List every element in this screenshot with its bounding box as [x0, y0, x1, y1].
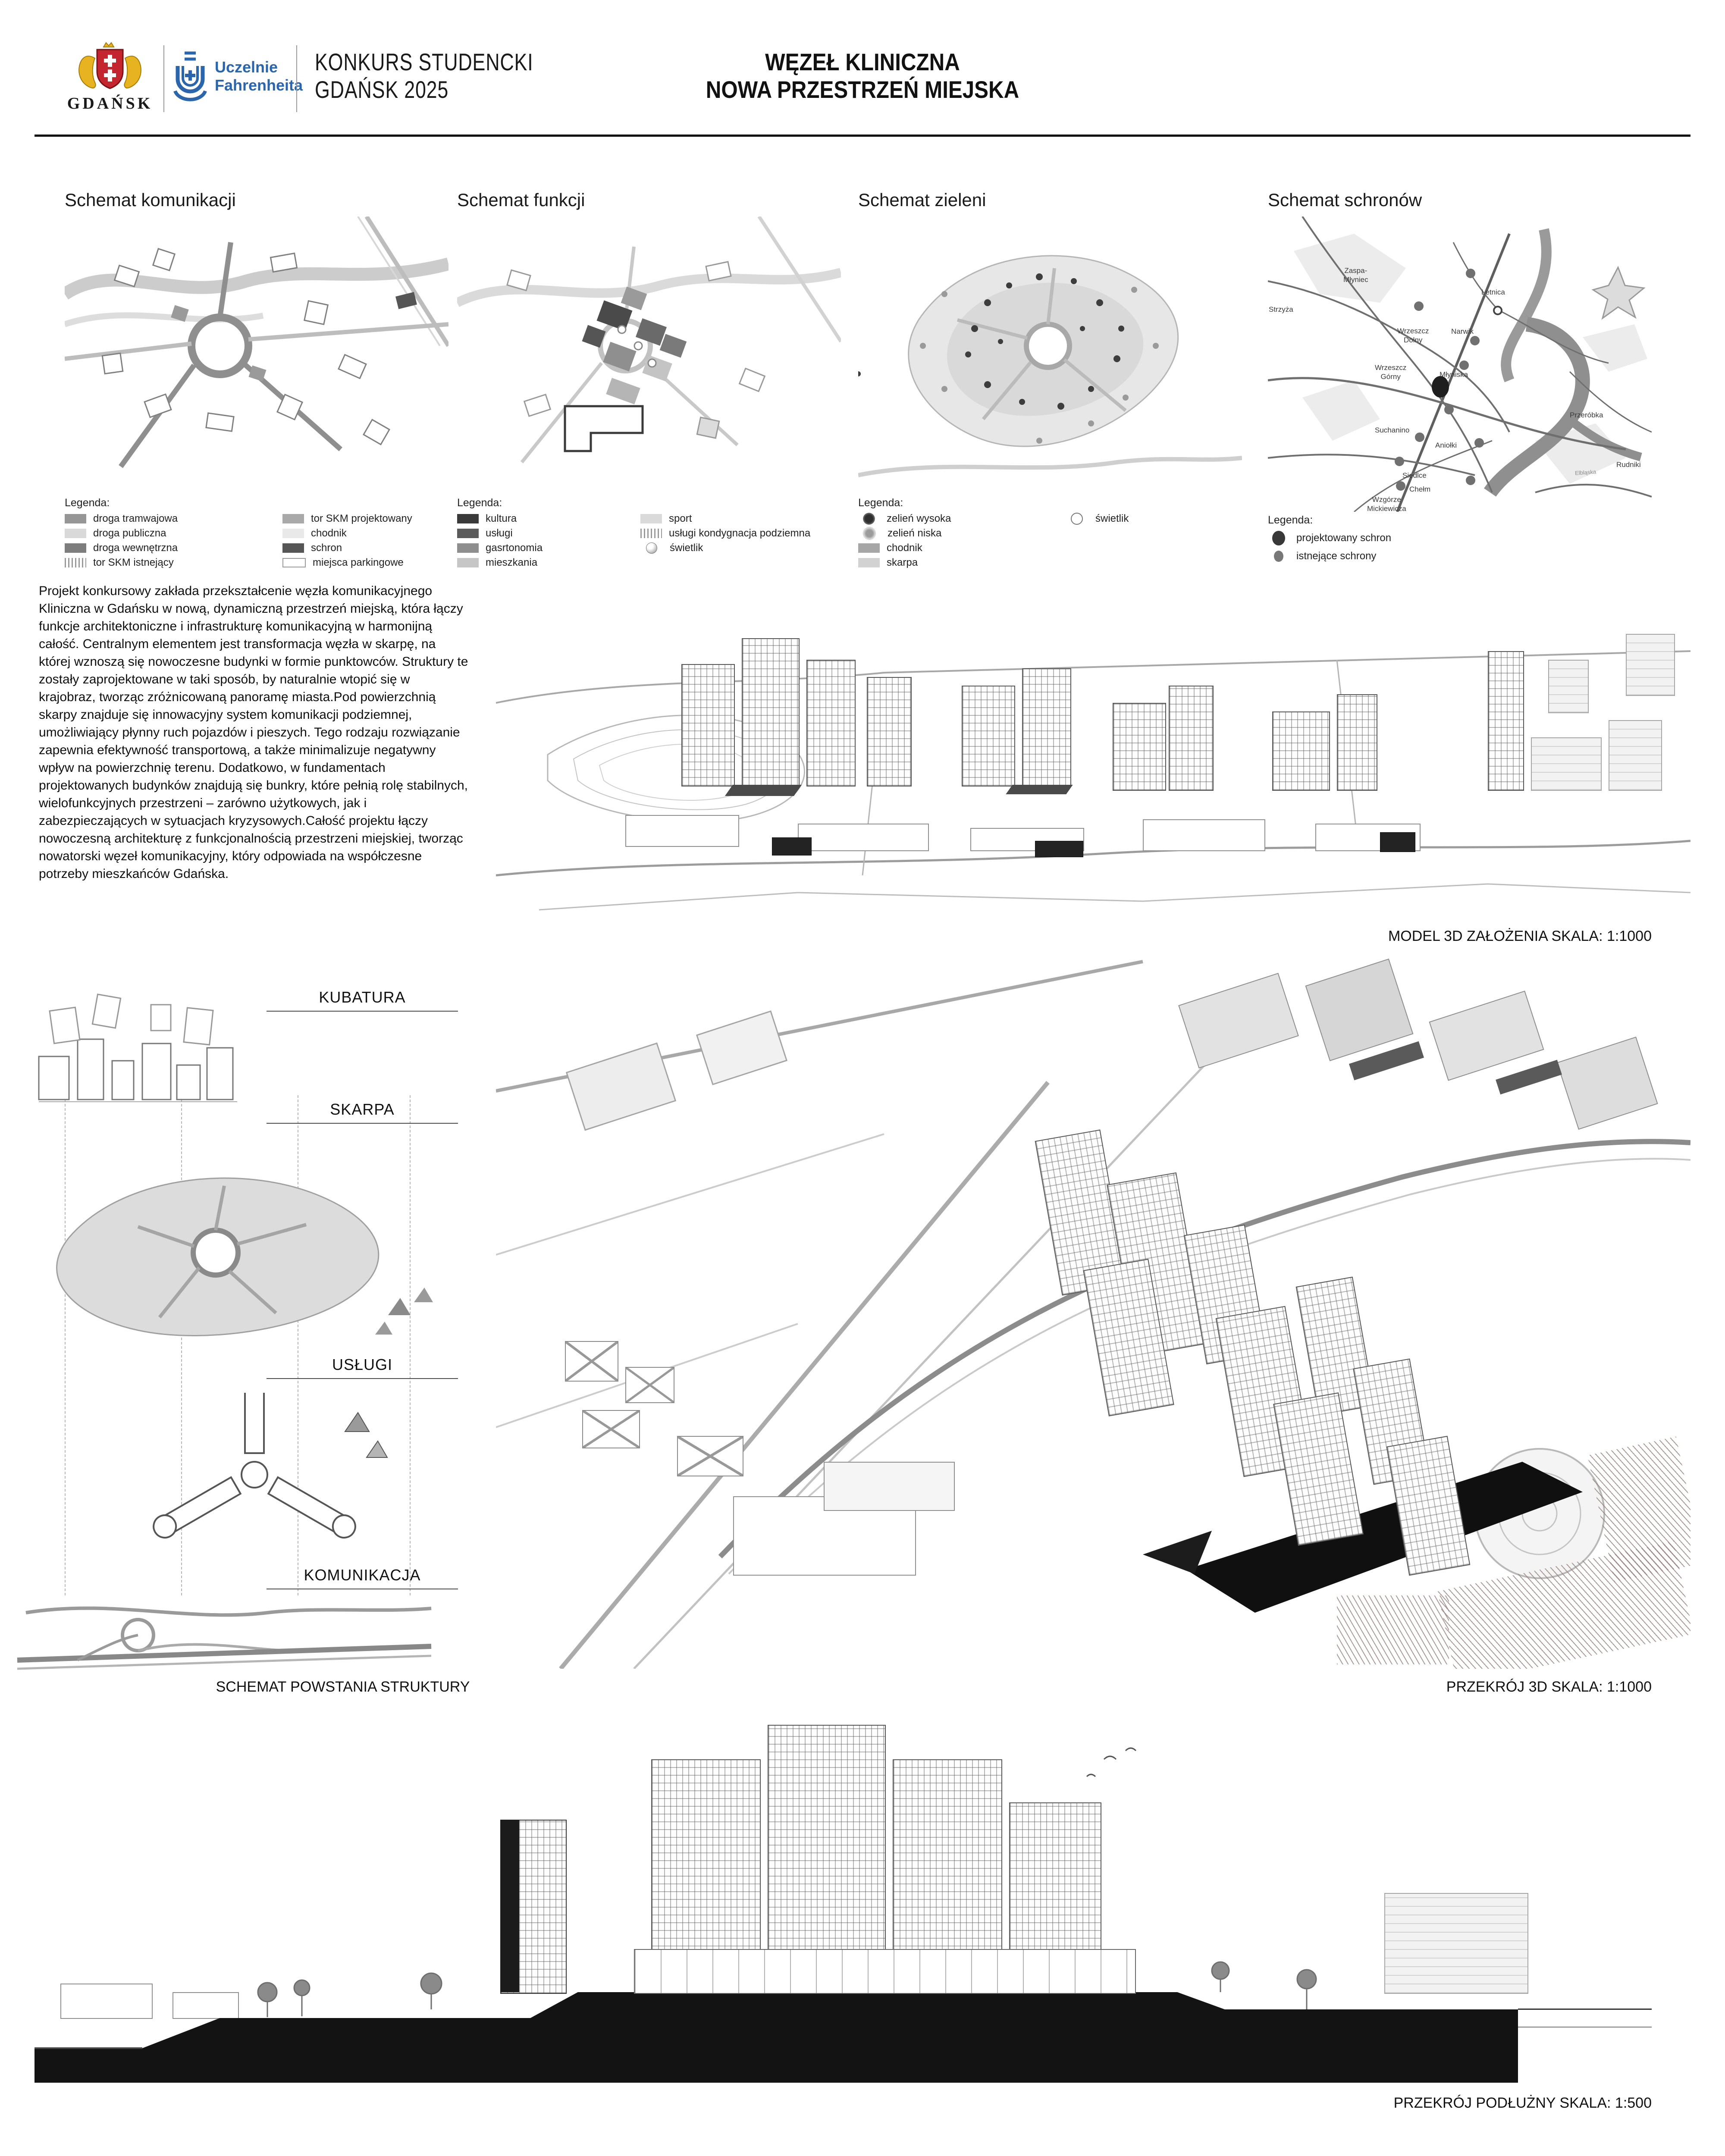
legend-swatch-outline — [282, 558, 306, 567]
legend-label: tor SKM projektowany — [311, 513, 412, 525]
legend-schrony-col1: projektowany schron istnejące schrony — [1268, 530, 1391, 566]
map-label-wrzeszcz-dolny: Wrzeszcz Dolny — [1397, 326, 1429, 345]
fahrenheit-line1: Uczelnie — [215, 58, 303, 76]
legend-swatch — [640, 514, 662, 523]
caption-section-3d: PRZEKRÓJ 3D SKALA: 1:1000 — [1264, 1679, 1652, 1695]
legend-item: świetlik — [1065, 512, 1129, 525]
legend-label: miejsca parkingowe — [313, 557, 404, 569]
header-divider — [163, 45, 164, 112]
legend-label: świetlik — [670, 542, 703, 554]
map-label-suchanino: Suchanino — [1375, 426, 1409, 435]
dark-block — [1035, 841, 1083, 857]
label-rule — [267, 1123, 458, 1124]
legend-komunikacja-col2: tor SKM projektowany chodnik schron miej… — [282, 512, 412, 571]
panel-schrony: Schemat schronów Zaspa- Młyniec Strzyża … — [1268, 190, 1652, 595]
legend-swatch — [457, 529, 479, 538]
legend-item: zelień niska — [858, 527, 951, 540]
legend-swatch — [858, 558, 880, 567]
legend-item: istnejące schrony — [1268, 548, 1391, 564]
low-greenery-icon — [863, 527, 876, 540]
building-block — [1337, 694, 1377, 791]
silhouette-trees — [34, 2147, 1652, 2156]
dark-block — [772, 837, 812, 856]
legend-label: mieszkania — [486, 557, 537, 569]
legend-swatch — [282, 543, 304, 553]
legend-label: świetlik — [1095, 513, 1129, 525]
competition-line1: KONKURS STUDENCKI — [315, 48, 533, 76]
section-context-building — [1384, 1893, 1528, 1994]
legend-item: usługi — [457, 527, 543, 540]
legend-item: świetlik — [640, 542, 810, 555]
header-divider-2 — [296, 45, 297, 112]
map-label-aniolki: Aniołki — [1435, 441, 1457, 450]
map-label-przerobka: Przeróbka — [1570, 411, 1603, 420]
section-ground-line — [1518, 2009, 1652, 2010]
skylight-ring-icon — [1071, 513, 1083, 525]
legend-item: droga tramwajowa — [65, 512, 178, 525]
legend-title-schrony: Legenda: — [1268, 514, 1313, 526]
legend-label: kultura — [486, 513, 517, 525]
structure-diagram-kubatura — [22, 979, 263, 1117]
legend-label: zelień niska — [888, 527, 941, 539]
structure-diagram-uslugi — [103, 1393, 405, 1574]
longitudinal-section-drawing — [34, 1708, 1544, 2083]
structure-label-komunikacja: KOMUNIKACJA — [267, 1566, 458, 1584]
legend-label: droga publiczna — [93, 527, 166, 539]
legend-label: droga tramwajowa — [93, 513, 178, 525]
page-title-line2: NOWA PRZESTRZEŃ MIEJSKA — [673, 76, 1052, 103]
section-tower-dark-strip — [500, 1820, 519, 1992]
gdansk-crest-icon — [73, 41, 147, 93]
panel-funkcje-title: Schemat funkcji — [457, 190, 841, 210]
legend-item: projektowany schron — [1268, 530, 1391, 547]
fahrenheit-logo-icon — [172, 50, 208, 106]
legend-funkcje-col1: kultura usługi gasrtonomia mieszkania — [457, 512, 543, 571]
building-block — [1169, 686, 1214, 791]
house-roof — [565, 1341, 618, 1382]
map-komunikacja — [65, 216, 448, 492]
building-block — [962, 686, 1015, 787]
panel-funkcje: Schemat funkcji Legenda: kultura usługi … — [457, 190, 841, 578]
gdansk-logo-text: GDAŃSK — [65, 94, 155, 113]
house-roof — [582, 1410, 640, 1448]
map-funkcje — [457, 216, 841, 492]
map-label-letnica: Letnica — [1481, 288, 1505, 297]
context-block — [1531, 737, 1602, 791]
legend-label: droga wewnętrzna — [93, 542, 178, 554]
legend-swatch — [65, 543, 86, 553]
fahrenheit-line2: Fahrenheita — [215, 76, 303, 94]
building-block — [806, 660, 856, 787]
legend-label: chodnik — [887, 542, 922, 554]
map-zielen — [858, 216, 1242, 492]
legend-label: chodnik — [311, 527, 347, 539]
legend-item: chodnik — [858, 542, 951, 555]
structure-diagram-komunikacja — [9, 1595, 440, 1675]
legend-swatch — [282, 529, 304, 538]
legend-swatch-hatch — [65, 558, 86, 567]
label-rule — [267, 1589, 458, 1589]
legend-item: tor SKM projektowany — [282, 512, 412, 525]
legend-zielen-col1: zelień wysoka zelień niska chodnik skarp… — [858, 512, 951, 571]
structure-label-kubatura: KUBATURA — [267, 988, 458, 1006]
fahrenheit-logo-text: Uczelnie Fahrenheita — [215, 58, 303, 94]
legend-swatch — [282, 514, 304, 523]
caption-model-3d: MODEL 3D ZAŁOŻENIA SKALA: 1:1000 — [1264, 928, 1652, 945]
legend-item: sport — [640, 512, 810, 525]
section-3d-drawing — [496, 953, 1690, 1669]
map-label-siedlce: Siedlce — [1402, 471, 1427, 480]
map-label-chelm: Chełm — [1409, 485, 1430, 494]
legend-item: zelień wysoka — [858, 512, 951, 525]
legend-item: mieszkania — [457, 556, 543, 569]
legend-swatch — [457, 558, 479, 567]
planned-shelter-icon — [1272, 531, 1285, 545]
panel-schrony-title: Schemat schronów — [1268, 190, 1652, 210]
competition-line2: GDAŃSK 2025 — [315, 76, 533, 103]
legend-item: tor SKM istnejący — [65, 556, 178, 569]
dark-block — [1380, 832, 1415, 852]
label-rule — [267, 1011, 458, 1012]
building-block — [1272, 711, 1330, 791]
legend-swatch — [65, 529, 86, 538]
structure-diagram-skarpa — [9, 1138, 457, 1354]
structure-label-skarpa: SKARPA — [267, 1100, 458, 1119]
panel-zielen-title: Schemat zieleni — [858, 190, 1242, 210]
legend-item: droga publiczna — [65, 527, 178, 540]
building-block — [742, 638, 800, 787]
legend-label: usługi — [486, 527, 513, 539]
building-block — [681, 664, 735, 787]
building-block — [1488, 651, 1524, 791]
map-label-zaspa: Zaspa- Młyniec — [1343, 266, 1368, 284]
context-block — [1626, 634, 1675, 696]
legend-swatch — [457, 543, 479, 553]
caption-longitudinal-section: PRZEKRÓJ PODŁUŻNY SKALA: 1:500 — [1264, 2095, 1652, 2112]
page-title-line1: WĘZEŁ KLINICZNA — [673, 48, 1052, 76]
panel-komunikacja: Schemat komunikacji Legenda: droga tramw… — [65, 190, 448, 578]
header-rule — [34, 135, 1690, 137]
house-roof — [677, 1436, 743, 1476]
map-label-wzgorze: Wzgórze Mickiewicza — [1367, 495, 1406, 513]
house-roof — [625, 1367, 674, 1403]
structure-label-komunikacja-group: KOMUNIKACJA — [267, 1566, 458, 1589]
project-description: Projekt konkursowy zakłada przekształcen… — [39, 582, 470, 883]
silhouette-drawing — [34, 2147, 1652, 2156]
building-block — [1113, 703, 1166, 791]
legend-funkcje-col2: sport usługi kondygnacja podziemna świet… — [640, 512, 810, 556]
legend-item: droga wewnętrzna — [65, 542, 178, 555]
legend-item: usługi kondygnacja podziemna — [640, 527, 810, 540]
legend-swatch-hatch — [640, 529, 662, 538]
section-ground-line-2 — [1518, 2027, 1652, 2028]
label-rule — [267, 1378, 458, 1379]
panel-komunikacja-title: Schemat komunikacji — [65, 190, 448, 210]
legend-label: gasrtonomia — [486, 542, 543, 554]
building-block — [867, 677, 912, 787]
map-label-strzyza: Strzyża — [1269, 305, 1293, 314]
legend-label: tor SKM istnejący — [93, 557, 174, 569]
structure-label-skarpa-group: SKARPA — [267, 1100, 458, 1124]
section-podium — [634, 1949, 1136, 1994]
map-label-wrzeszcz-gorny: Wrzeszcz Górny — [1375, 363, 1406, 381]
map-label-elblaska: Elbląska — [1574, 467, 1596, 477]
legend-label: sport — [669, 513, 692, 525]
legend-item: chodnik — [282, 527, 412, 540]
building-shadow — [725, 785, 802, 796]
building-block — [1022, 668, 1071, 787]
structure-label-uslugi-group: USŁUGI — [267, 1356, 458, 1379]
context-block — [1548, 660, 1589, 713]
legend-label: zelień wysoka — [887, 513, 951, 525]
caption-structure-schema: SCHEMAT POWSTANIA STRUKTURY — [181, 1679, 505, 1695]
low-context — [824, 1462, 955, 1511]
low-block — [1143, 819, 1265, 851]
legend-label: schron — [311, 542, 342, 554]
hatch-field — [1337, 1595, 1449, 1664]
legend-item: miejsca parkingowe — [282, 556, 412, 569]
legend-swatch — [65, 514, 86, 523]
legend-title-funkcje: Legenda: — [457, 497, 502, 509]
legend-item: schron — [282, 542, 412, 555]
legend-label: istnejące schrony — [1296, 550, 1376, 562]
low-block — [798, 824, 929, 851]
legend-title-zielen: Legenda: — [858, 497, 903, 509]
legend-label: projektowany schron — [1296, 532, 1391, 544]
legend-item: skarpa — [858, 556, 951, 569]
model-3d-drawing — [496, 573, 1690, 923]
map-label-mlyniska: Młyniska — [1440, 370, 1468, 379]
page-title: WĘZEŁ KLINICZNA NOWA PRZESTRZEŃ MIEJSKA — [673, 48, 1052, 103]
legend-swatch — [858, 543, 880, 553]
competition-title: KONKURS STUDENCKI GDAŃSK 2025 — [315, 48, 533, 103]
panel-zielen: Schemat zieleni Legenda: zelień wysoka z… — [858, 190, 1242, 578]
header: GDAŃSK Uczelnie Fahrenheita KONKURS STUD… — [0, 0, 1725, 134]
legend-swatch — [457, 514, 479, 523]
context-block — [1609, 720, 1662, 791]
legend-komunikacja-col1: droga tramwajowa droga publiczna droga w… — [65, 512, 178, 571]
legend-label: skarpa — [887, 557, 918, 569]
structure-label-uslugi: USŁUGI — [267, 1356, 458, 1374]
existing-shelter-icon — [1274, 551, 1283, 562]
structure-label-kubatura-group: KUBATURA — [267, 988, 458, 1012]
legend-item: kultura — [457, 512, 543, 525]
legend-zielen-col2: świetlik — [1065, 512, 1129, 527]
legend-title-komunikacja: Legenda: — [65, 497, 110, 509]
building-shadow — [1006, 785, 1073, 794]
skylight-icon — [646, 542, 657, 554]
low-block — [625, 815, 739, 847]
tall-greenery-icon — [863, 513, 875, 525]
legend-label: usługi kondygnacja podziemna — [669, 527, 810, 539]
legend-item: gasrtonomia — [457, 542, 543, 555]
map-label-rudniki: Rudniki — [1616, 460, 1641, 469]
map-label-narwik: Narwik — [1451, 327, 1474, 336]
